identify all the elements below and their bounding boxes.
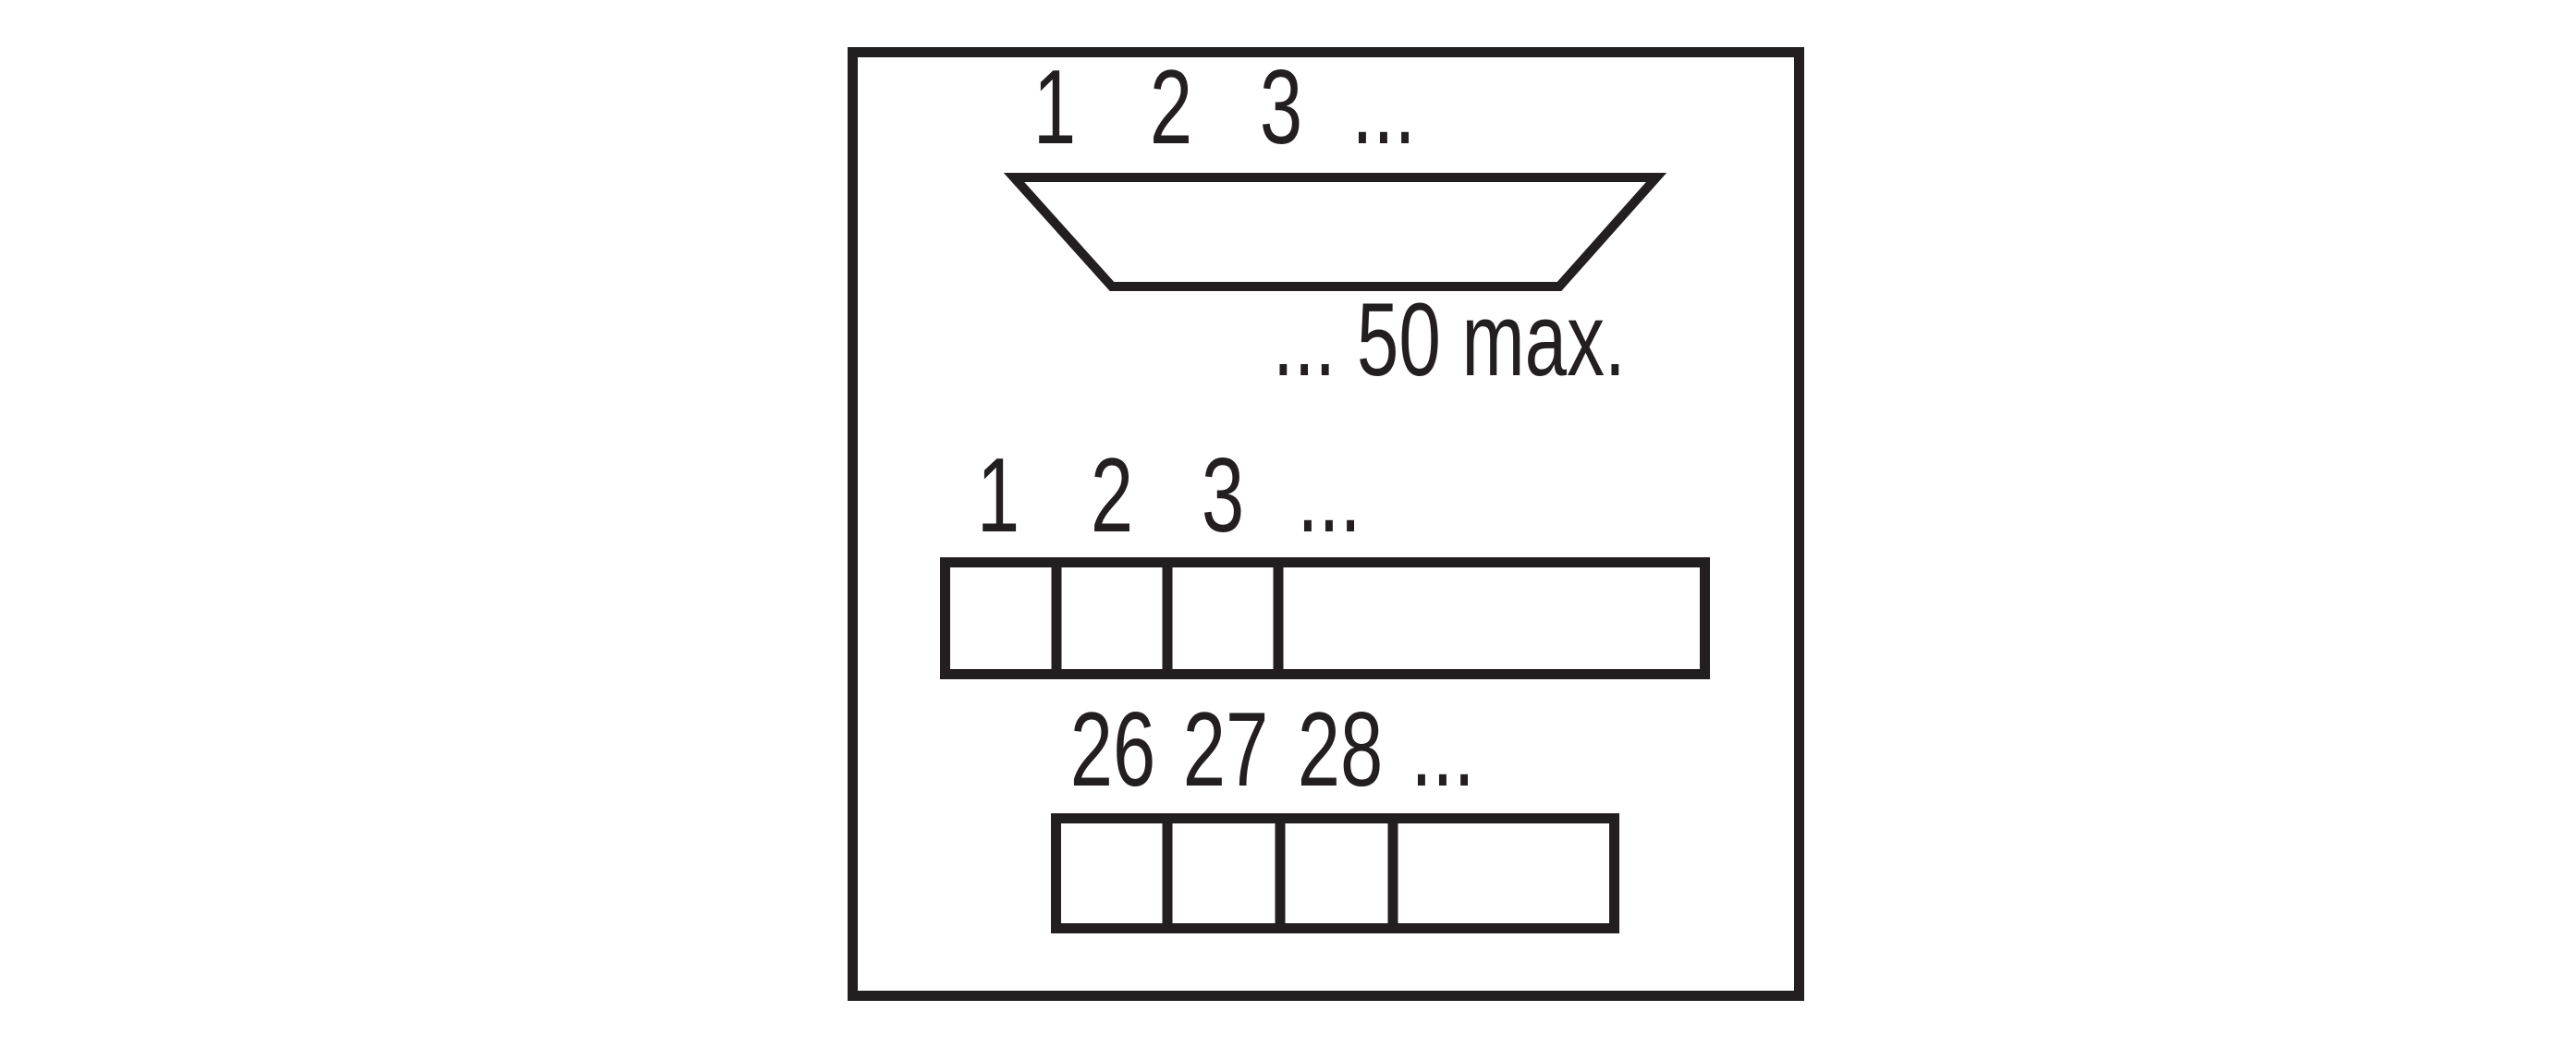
strip-upper-pin-label-3: 3 (1202, 444, 1244, 549)
strip-upper-pin-label-2: 2 (1091, 444, 1133, 549)
connector-pin-label-3: 3 (1260, 55, 1302, 161)
connector-pin-label-2: 2 (1150, 55, 1192, 161)
strip-upper-pin-label-ellipsis: ... (1297, 444, 1361, 549)
connector-trapezoid (1014, 177, 1656, 286)
terminal-strip-upper (946, 557, 1705, 679)
connector-max-pins-note: ... 50 max. (1273, 288, 1626, 392)
strip-lower-pin-label-27: 27 (1183, 698, 1269, 803)
connector-pin-label-ellipsis: ... (1351, 55, 1415, 161)
terminal-strip-lower (1056, 813, 1615, 933)
strip-lower-pin-label-28: 28 (1298, 698, 1384, 803)
strip-lower-pin-label-26: 26 (1070, 698, 1156, 803)
connector-pin-label-1: 1 (1033, 55, 1076, 161)
terminal-strip-lower-outline (1056, 819, 1615, 929)
pin-assignment-diagram: 1 2 3 ... ... 50 max. 1 2 3 ... 26 27 28… (0, 0, 2576, 1048)
strip-upper-pin-label-1: 1 (977, 444, 1019, 549)
strip-lower-pin-label-ellipsis: ... (1410, 698, 1474, 803)
